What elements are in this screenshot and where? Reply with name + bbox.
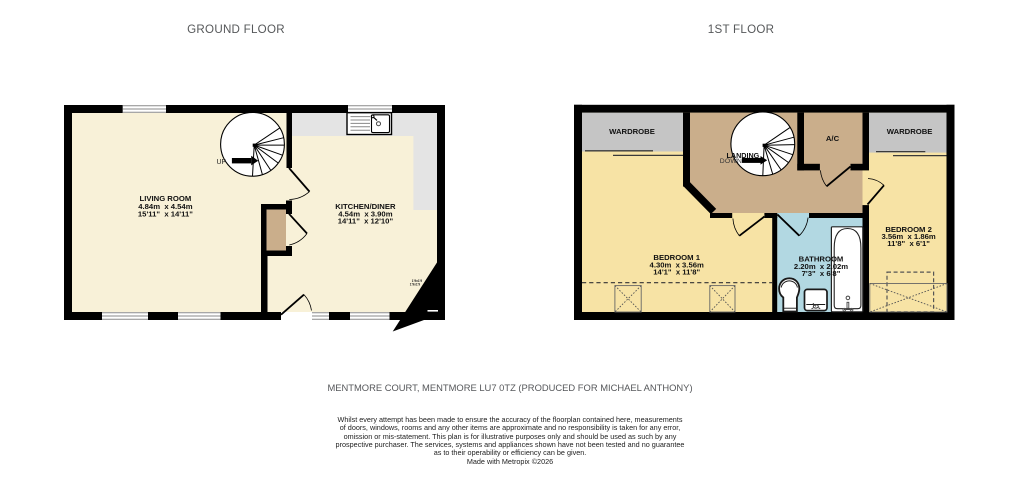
svg-text:7'3" x 6'8": 7'3" x 6'8" (802, 269, 841, 278)
svg-text:14'1" x 11'8": 14'1" x 11'8" (653, 267, 700, 276)
svg-text:UP: UP (217, 159, 227, 166)
svg-text:11'8" x 6'1": 11'8" x 6'1" (887, 239, 930, 248)
svg-text:WARDROBE: WARDROBE (609, 127, 655, 136)
svg-text:14'11" x 12'10": 14'11" x 12'10" (338, 216, 394, 225)
svg-text:A/C: A/C (826, 134, 840, 143)
svg-text:1'9x1'9: 1'9x1'9 (410, 283, 421, 287)
svg-text:DOWN: DOWN (720, 158, 742, 165)
svg-text:15'11" x 14'11": 15'11" x 14'11" (138, 210, 193, 219)
svg-text:WARDROBE: WARDROBE (887, 127, 933, 136)
